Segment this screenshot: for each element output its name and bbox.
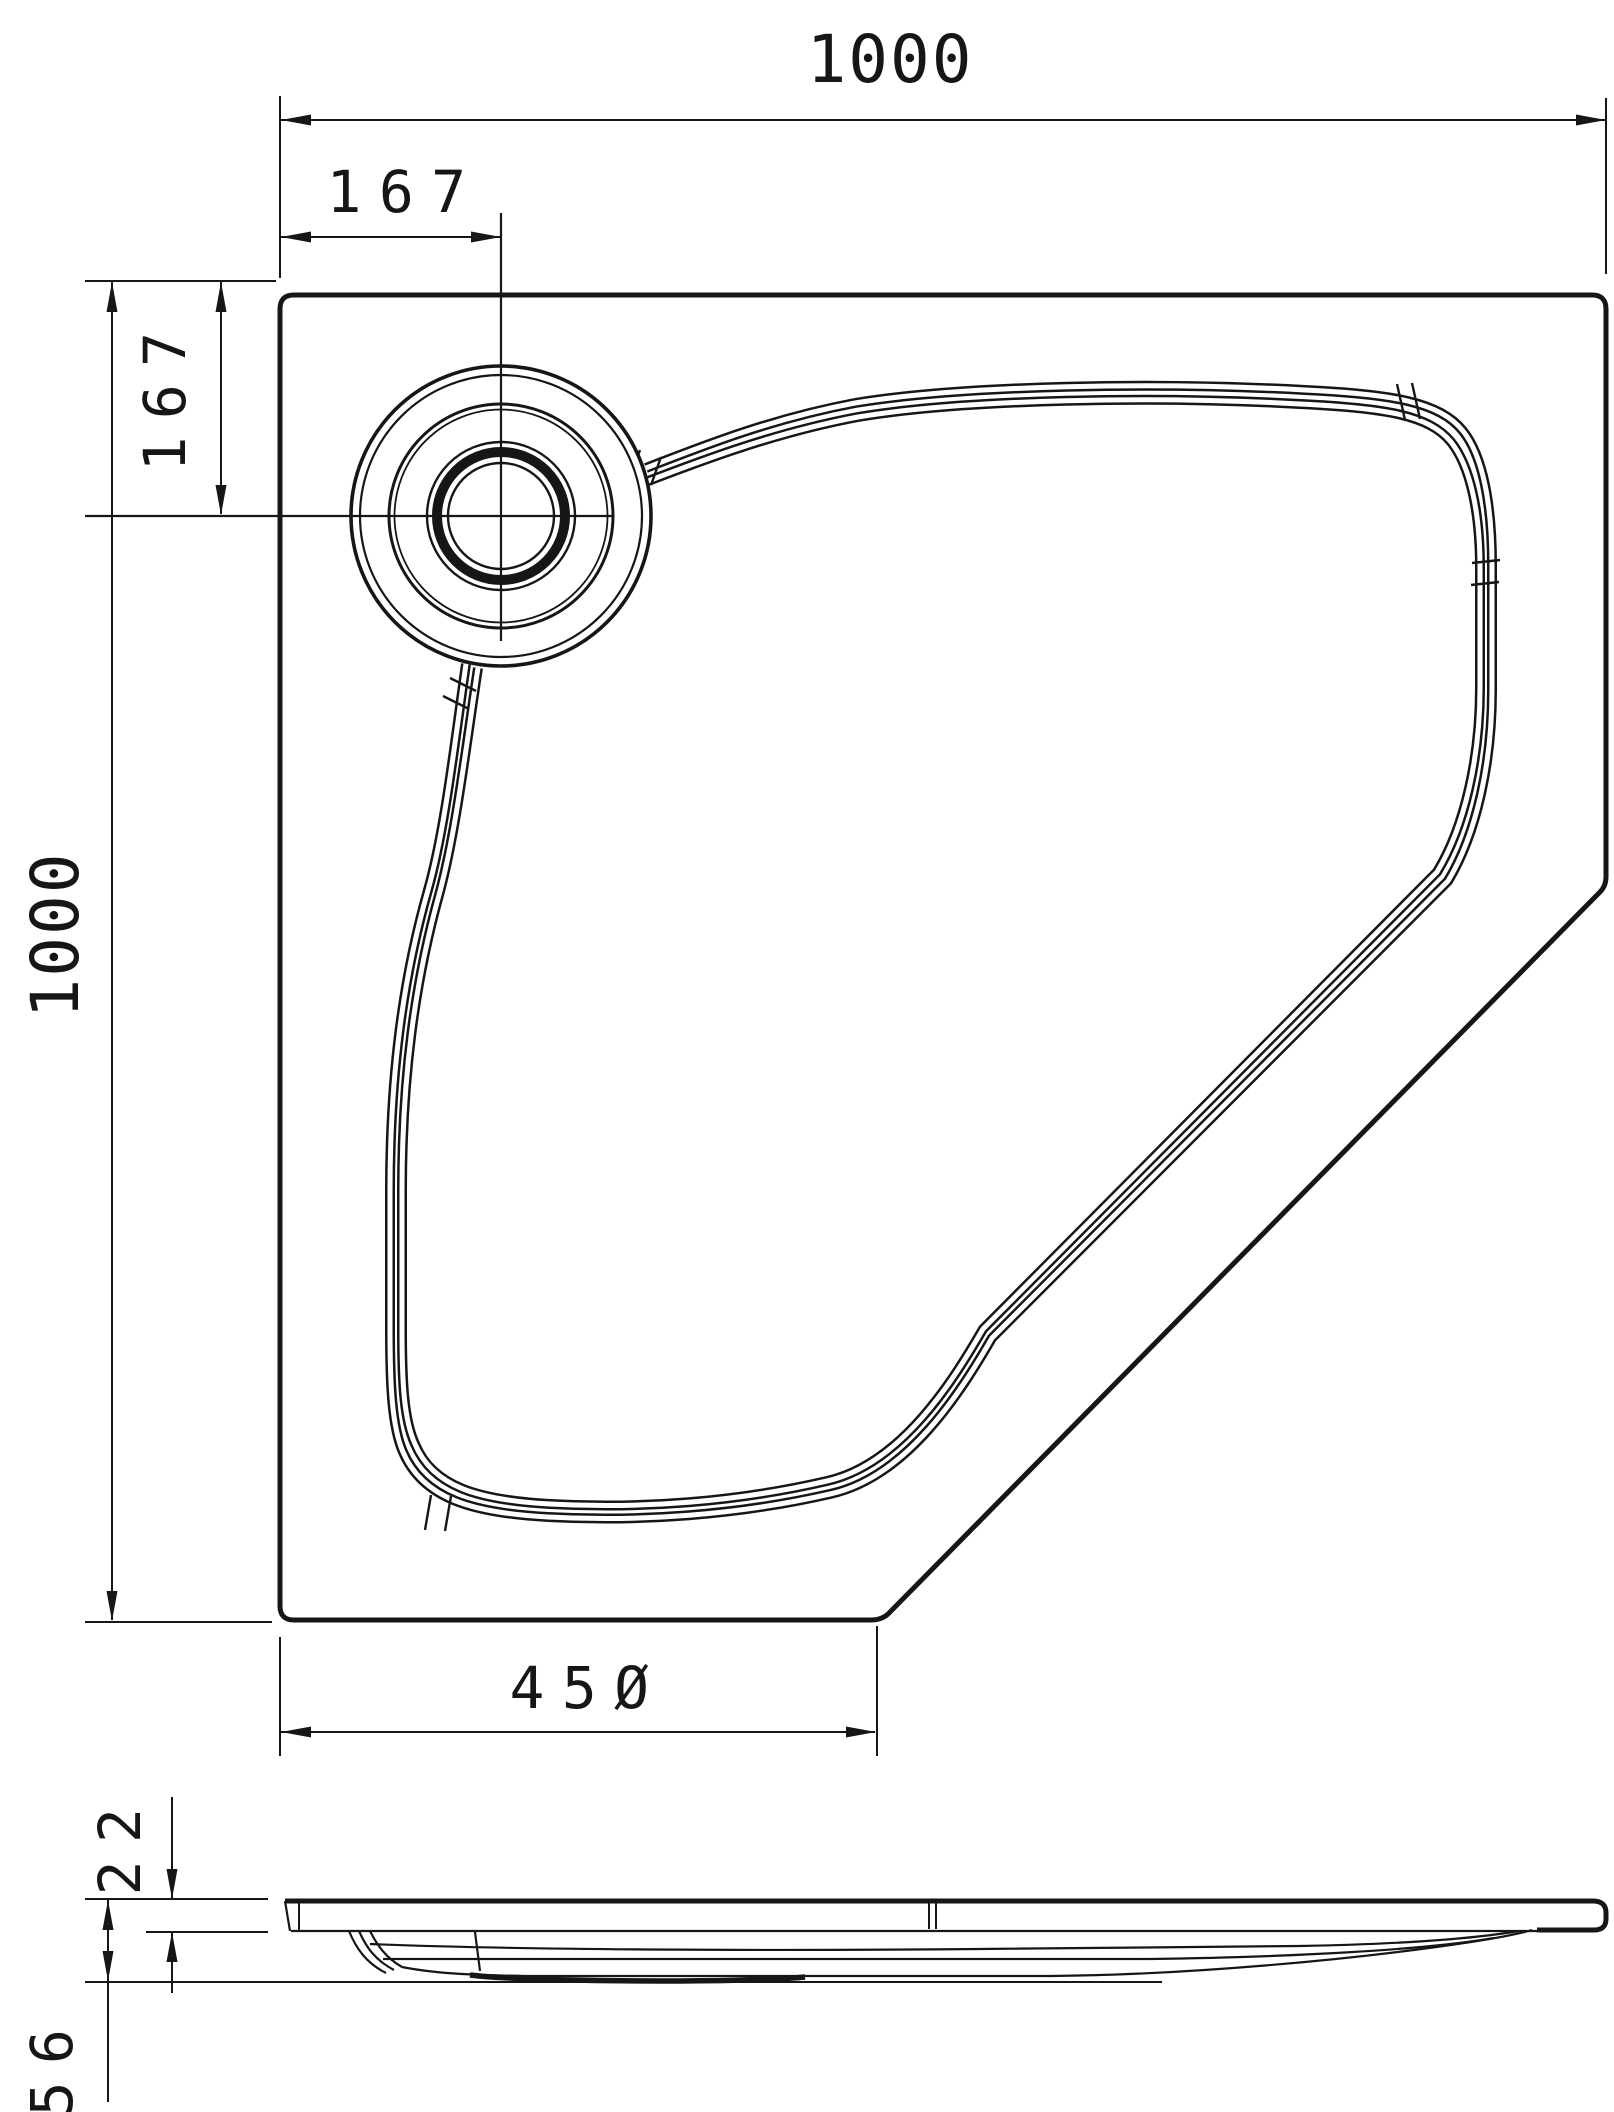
side-view: 22 56 (18, 1791, 1606, 2112)
side-plate-left-tip (285, 1901, 290, 1931)
side-plate-top (285, 1901, 1606, 1930)
dim-label-depth-left: 1000 (17, 852, 94, 1019)
dim-label-drain-offset-y: 167 (131, 315, 199, 472)
basin-section-joint (475, 1932, 480, 1971)
technical-drawing: 1000 167 1000 167 45Ø (0, 0, 1614, 2112)
dim-label-rim-thickness: 22 (86, 1791, 154, 1896)
dim-label-width-top: 1000 (807, 21, 974, 98)
dim-label-bottom-edge: 45Ø (510, 1654, 667, 1722)
drawing-sheet: 1000 167 1000 167 45Ø (0, 0, 1614, 2112)
side-plate-joint-marks (929, 1903, 936, 1929)
basin-wall-outer (349, 1931, 386, 1973)
basin-floor (402, 1930, 1532, 1976)
plan-view (85, 213, 1606, 1620)
side-dimensions: 22 56 (18, 1791, 268, 2112)
dim-label-drain-offset-x: 167 (327, 158, 484, 226)
dim-label-total-height: 56 (18, 2012, 86, 2112)
side-basin-profile (349, 1930, 1532, 1981)
basin-wall-mid (359, 1931, 394, 1970)
basin-wall-inner (370, 1931, 402, 1967)
basin-ledge-line-1 (370, 1931, 1519, 1950)
